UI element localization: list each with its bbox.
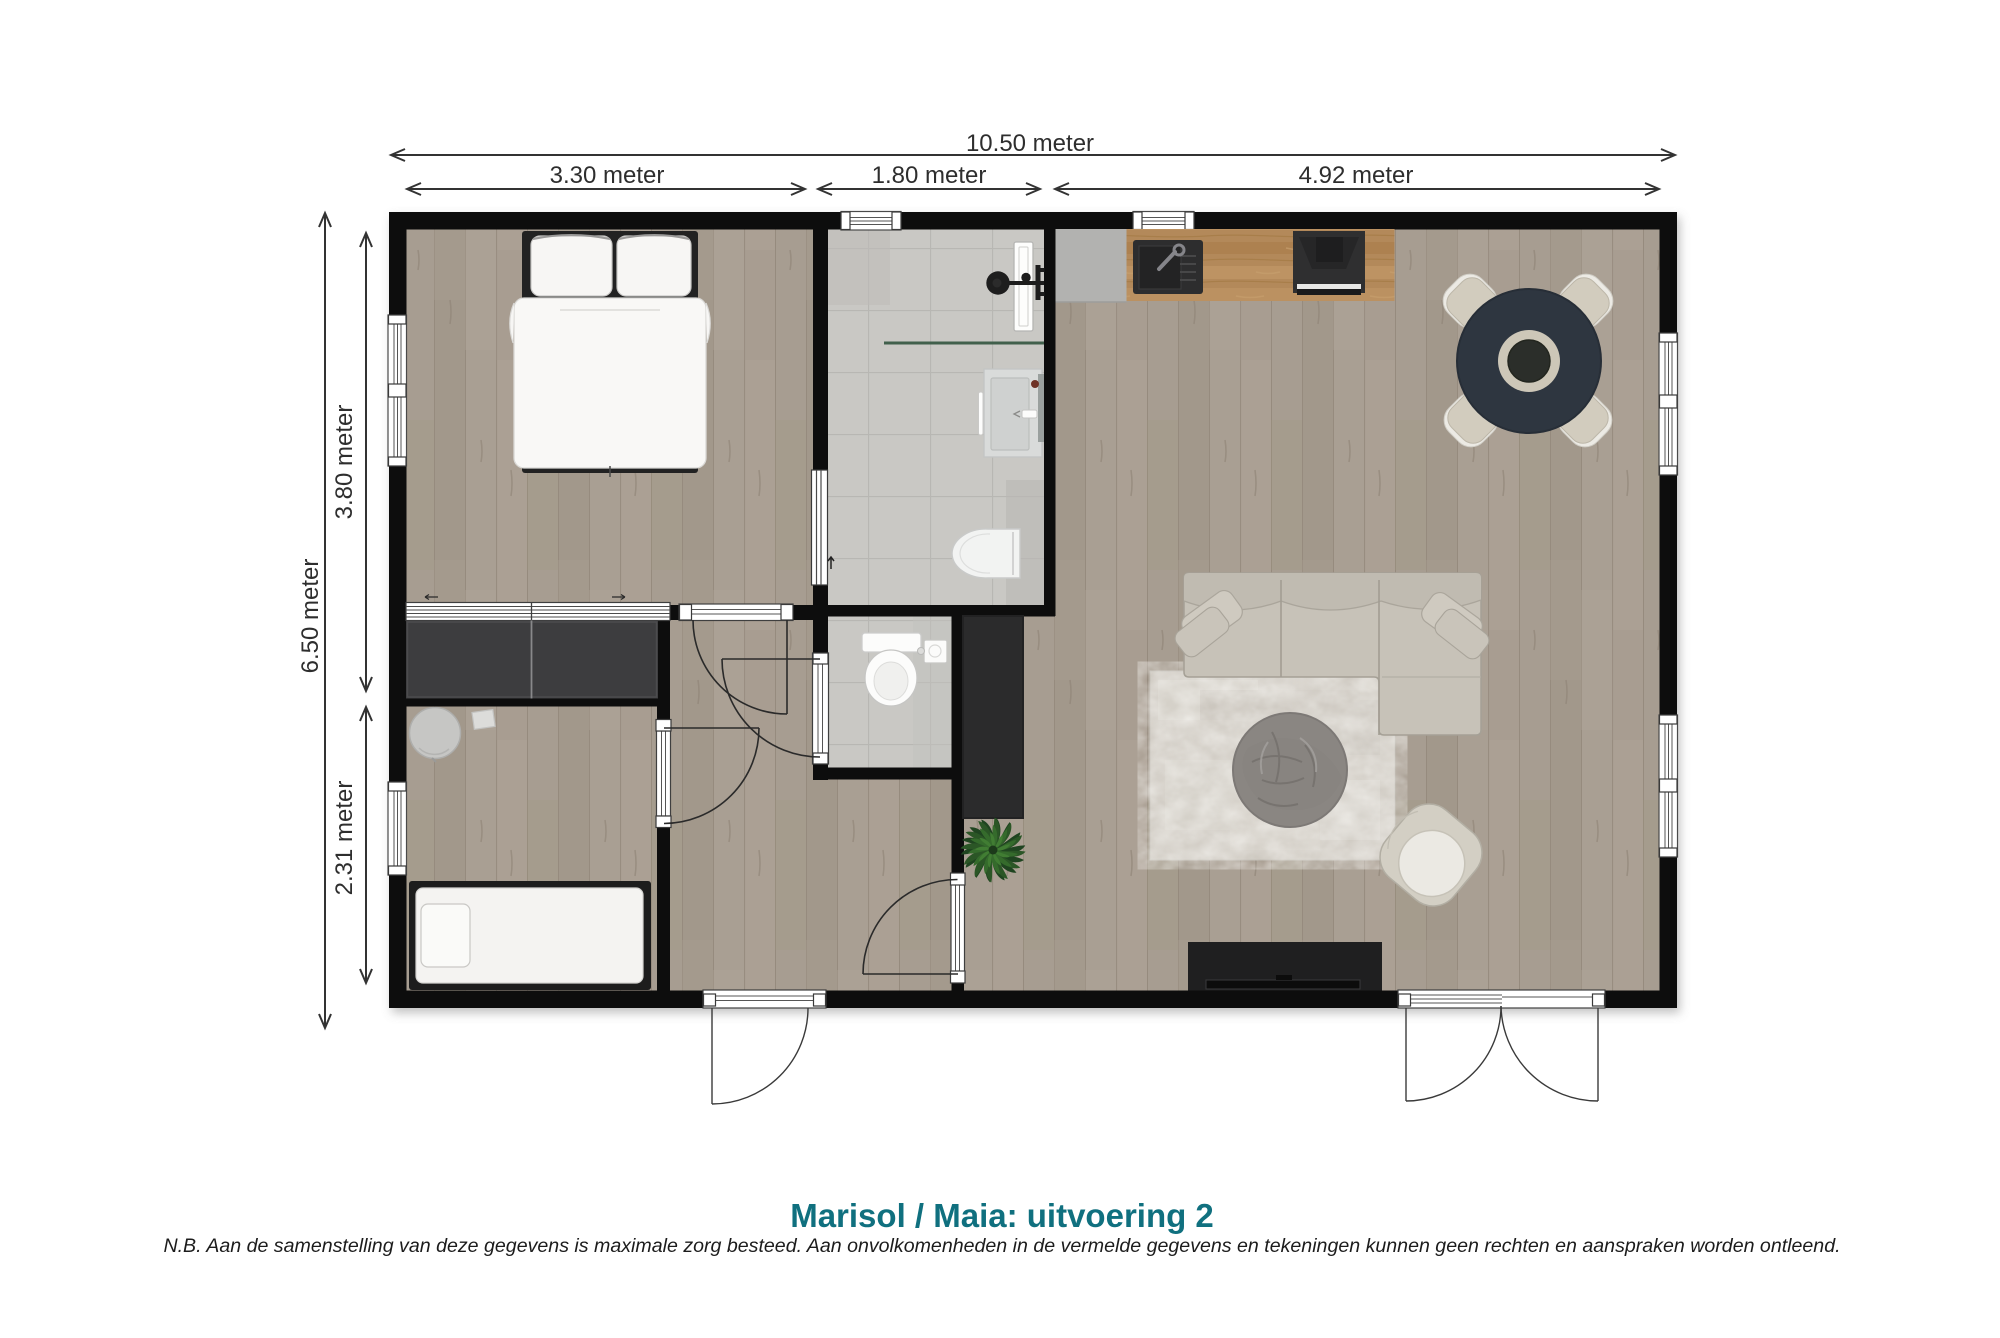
- svg-text:10.50 meter: 10.50 meter: [966, 130, 1094, 157]
- svg-text:Marisol / Maia: uitvoering 2: Marisol / Maia: uitvoering 2: [790, 1197, 1214, 1234]
- svg-text:6.50 meter: 6.50 meter: [297, 559, 324, 674]
- svg-text:1.80 meter: 1.80 meter: [872, 162, 987, 189]
- svg-text:4.92 meter: 4.92 meter: [1299, 162, 1414, 189]
- svg-text:3.30 meter: 3.30 meter: [550, 162, 665, 189]
- svg-text:2.31 meter: 2.31 meter: [331, 781, 358, 896]
- svg-text:N.B. Aan de samenstelling van: N.B. Aan de samenstelling van deze gegev…: [163, 1235, 1840, 1257]
- svg-text:3.80 meter: 3.80 meter: [331, 405, 358, 520]
